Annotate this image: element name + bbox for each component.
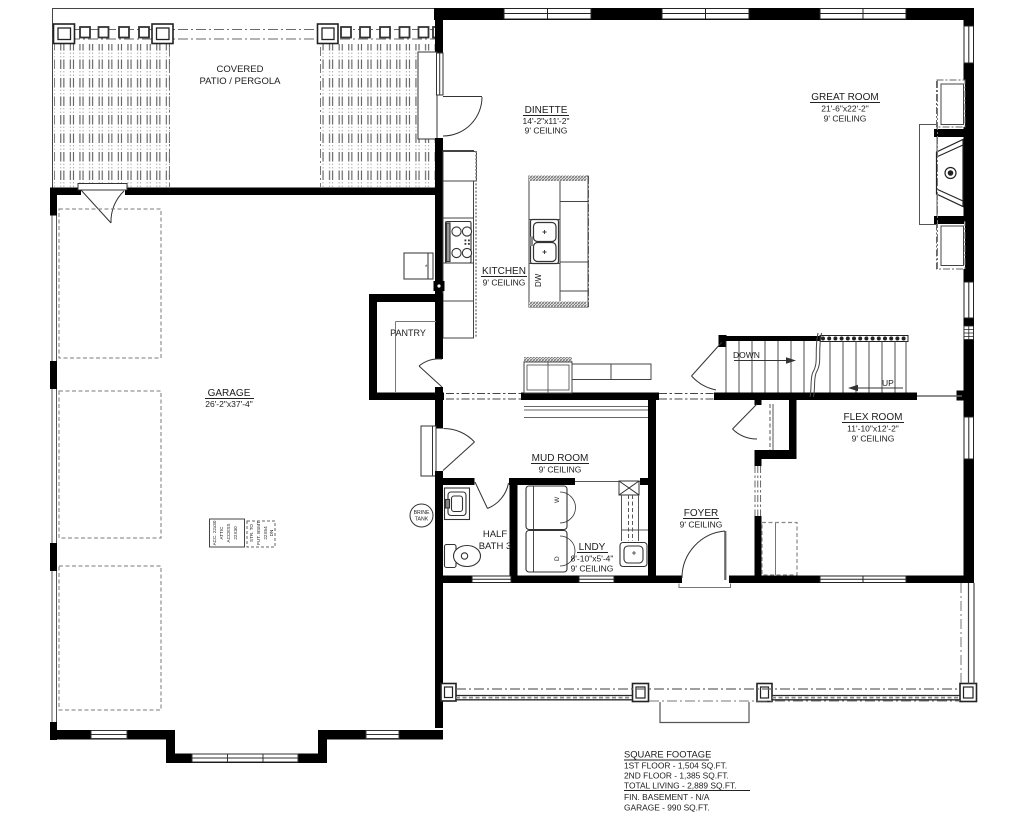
- svg-text:KITCHEN: KITCHEN: [482, 266, 526, 277]
- svg-text:COVERED: COVERED: [217, 64, 264, 75]
- svg-text:ACCESS: ACCESS: [226, 524, 231, 543]
- svg-text:9' CEILING: 9' CEILING: [680, 520, 723, 530]
- svg-text:26'-2"x37'-4": 26'-2"x37'-4": [205, 399, 253, 409]
- svg-text:DINETTE: DINETTE: [525, 105, 568, 116]
- svg-text:STR. TO: STR. TO: [249, 524, 254, 542]
- svg-text:DW: DW: [534, 273, 543, 287]
- svg-text:FOYER: FOYER: [684, 508, 718, 519]
- svg-text:BATH 3: BATH 3: [479, 541, 512, 552]
- svg-text:1ST FLOOR - 1,504 SQ.FT.: 1ST FLOOR - 1,504 SQ.FT.: [624, 761, 727, 771]
- svg-text:GARAGE - 990 SQ.FT.: GARAGE - 990 SQ.FT.: [624, 803, 710, 813]
- svg-text:MUD ROOM: MUD ROOM: [532, 453, 589, 464]
- svg-text:W: W: [554, 496, 561, 503]
- svg-text:GREAT ROOM: GREAT ROOM: [811, 92, 878, 103]
- svg-text:9' CEILING: 9' CEILING: [571, 564, 614, 574]
- svg-text:FIN. BASEMENT - N/A: FIN. BASEMENT - N/A: [624, 792, 710, 802]
- svg-text:ATTIC: ATTIC: [219, 526, 224, 540]
- svg-text:FUT. BSMT: FUT. BSMT: [256, 521, 261, 545]
- svg-text:PANTRY: PANTRY: [390, 328, 426, 338]
- svg-text:11'-10"x12'-2": 11'-10"x12'-2": [847, 424, 899, 434]
- svg-text:UP: UP: [882, 378, 894, 388]
- svg-text:TANK: TANK: [415, 517, 429, 523]
- svg-text:9' CEILING: 9' CEILING: [525, 126, 568, 136]
- svg-text:14'-2"x11'-2": 14'-2"x11'-2": [523, 116, 570, 126]
- svg-text:22X30: 22X30: [233, 526, 238, 540]
- svg-text:LNDY: LNDY: [579, 542, 606, 553]
- svg-text:9' CEILING: 9' CEILING: [824, 114, 867, 124]
- svg-text:FLEX ROOM: FLEX ROOM: [844, 412, 903, 423]
- svg-text:9' CEILING: 9' CEILING: [539, 465, 582, 475]
- svg-text:ACC. 22x30: ACC. 22x30: [212, 520, 217, 545]
- svg-text:2ND FLOOR - 1,385 SQ.FT.: 2ND FLOOR - 1,385 SQ.FT.: [624, 771, 729, 781]
- svg-text:8'-10"x5'-4": 8'-10"x5'-4": [571, 554, 614, 564]
- svg-text:GARAGE: GARAGE: [208, 388, 251, 399]
- svg-text:D: D: [554, 556, 561, 561]
- svg-text:DN: DN: [269, 530, 274, 537]
- svg-text:22X54: 22X54: [263, 526, 268, 540]
- svg-text:HALF: HALF: [483, 529, 507, 540]
- svg-text:9' CEILING: 9' CEILING: [483, 278, 526, 288]
- svg-text:SQUARE FOOTAGE: SQUARE FOOTAGE: [624, 749, 711, 760]
- svg-text:PATIO / PERGOLA: PATIO / PERGOLA: [200, 76, 282, 87]
- svg-text:TOTAL LIVING - 2,889 SQ.FT.: TOTAL LIVING - 2,889 SQ.FT.: [624, 781, 736, 791]
- svg-text:DOWN: DOWN: [733, 350, 760, 360]
- svg-text:BRINE: BRINE: [414, 510, 430, 516]
- svg-text:9' CEILING: 9' CEILING: [852, 434, 895, 444]
- svg-text:21'-6"x22'-2": 21'-6"x22'-2": [821, 104, 869, 114]
